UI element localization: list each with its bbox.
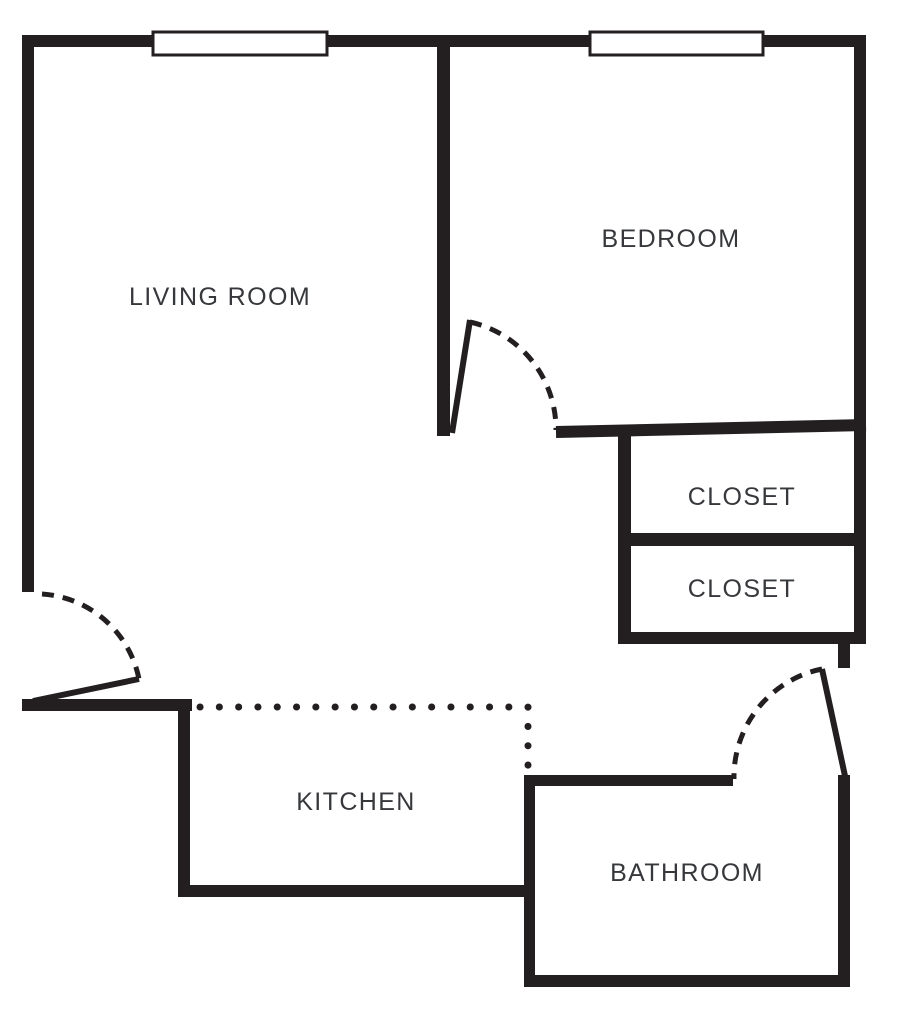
wall-closet-bottom [618,632,866,644]
wall-closet-divider [624,533,860,546]
room-labels: LIVING ROOM BEDROOM CLOSET CLOSET KITCHE… [129,225,796,887]
entry-door-swing-arc [42,594,139,679]
wall-stub-bathroom-door-jamb [838,644,850,668]
bathroom-door-leaf [822,669,845,776]
bedroom-label: BEDROOM [602,225,741,253]
window-bedroom [590,32,763,55]
bedroom-door-swing-arc [470,322,556,430]
floor-plan-canvas: LIVING ROOM BEDROOM CLOSET CLOSET KITCHE… [0,0,902,1021]
wall-bathroom-top [524,775,733,786]
closet-upper-label: CLOSET [688,483,796,511]
wall-livingroom-bedroom-divider [437,40,450,436]
bathroom-door-swing-arc [734,669,822,779]
wall-bathroom-right [838,775,850,987]
wall-bedroom-bottom [556,425,866,432]
wall-right [854,35,866,641]
bedroom-door-leaf [452,320,470,433]
window-living-room [153,32,327,55]
walls [22,35,866,987]
entry-door-leaf [33,679,139,701]
living-room-label: LIVING ROOM [129,283,311,311]
bathroom-label: BATHROOM [610,859,764,887]
wall-bathroom-bottom [524,975,850,987]
kitchen-label: KITCHEN [296,788,416,816]
wall-left [22,35,34,592]
floor-plan: LIVING ROOM BEDROOM CLOSET CLOSET KITCHE… [0,0,902,1021]
closet-lower-label: CLOSET [688,575,796,603]
